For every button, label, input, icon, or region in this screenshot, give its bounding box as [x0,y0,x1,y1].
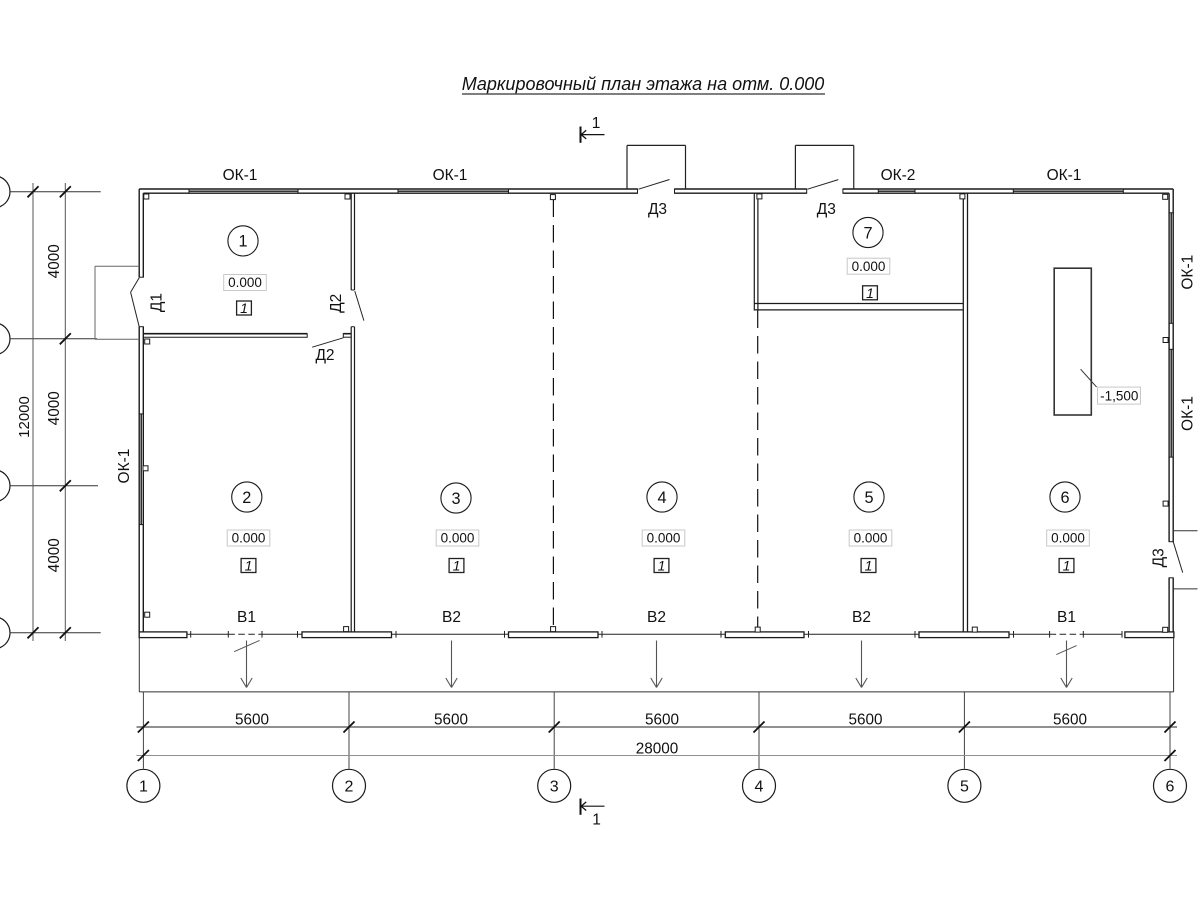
svg-text:4: 4 [755,779,764,796]
svg-text:5600: 5600 [848,712,882,729]
svg-text:Д1: Д1 [148,293,165,312]
svg-text:ОК-2: ОК-2 [881,167,916,184]
svg-text:5: 5 [960,779,969,796]
svg-text:ОК-1: ОК-1 [116,449,133,484]
svg-text:0.000: 0.000 [852,259,886,274]
svg-text:0.000: 0.000 [441,531,475,546]
svg-text:1: 1 [453,558,461,574]
svg-text:В2: В2 [647,609,666,626]
svg-text:6: 6 [1060,489,1069,507]
svg-text:Д3: Д3 [648,201,667,218]
svg-text:1: 1 [245,558,253,574]
svg-text:0.000: 0.000 [854,531,888,546]
svg-text:ОК-1: ОК-1 [433,167,468,184]
svg-text:Д3: Д3 [817,201,836,218]
svg-text:В1: В1 [1057,609,1076,626]
svg-text:5600: 5600 [645,712,679,729]
svg-text:4000: 4000 [46,538,63,572]
svg-text:5600: 5600 [434,712,468,729]
svg-text:0.000: 0.000 [232,531,266,546]
svg-text:ОК-1: ОК-1 [223,167,258,184]
svg-text:4000: 4000 [46,391,63,425]
svg-text:3: 3 [550,779,559,796]
svg-text:ОК-1: ОК-1 [1180,396,1197,431]
svg-text:ОК-1: ОК-1 [1047,167,1082,184]
svg-text:0.000: 0.000 [228,275,262,290]
svg-text:5: 5 [864,489,873,507]
svg-text:3: 3 [451,490,460,508]
svg-text:1: 1 [592,115,601,132]
svg-text:В2: В2 [442,609,461,626]
svg-text:4: 4 [657,489,666,507]
svg-text:ОК-1: ОК-1 [1180,255,1197,290]
svg-text:1: 1 [1063,558,1071,574]
svg-text:Д3: Д3 [1151,548,1168,567]
svg-text:28000: 28000 [636,741,679,758]
svg-text:1: 1 [238,233,247,251]
svg-text:Д2: Д2 [315,347,334,364]
svg-text:0.000: 0.000 [1051,531,1085,546]
svg-text:4000: 4000 [46,244,63,278]
svg-text:Д2: Д2 [328,294,345,313]
svg-text:6: 6 [1166,779,1175,796]
svg-text:-1,500: -1,500 [1100,388,1138,403]
svg-text:5600: 5600 [1053,712,1087,729]
svg-text:1: 1 [139,779,148,796]
svg-text:0.000: 0.000 [647,531,681,546]
svg-text:12000: 12000 [16,396,33,438]
svg-text:7: 7 [863,224,872,242]
svg-text:В2: В2 [852,609,871,626]
svg-text:1: 1 [658,558,666,574]
svg-text:1: 1 [592,812,601,829]
svg-text:2: 2 [345,779,354,796]
svg-text:2: 2 [242,489,251,507]
svg-text:5600: 5600 [235,712,269,729]
svg-text:1: 1 [865,558,873,574]
svg-text:1: 1 [240,300,248,316]
svg-text:1: 1 [866,285,874,301]
svg-text:Маркировочный план этажа на от: Маркировочный план этажа на отм. 0.000 [462,74,825,94]
svg-text:В1: В1 [237,609,256,626]
